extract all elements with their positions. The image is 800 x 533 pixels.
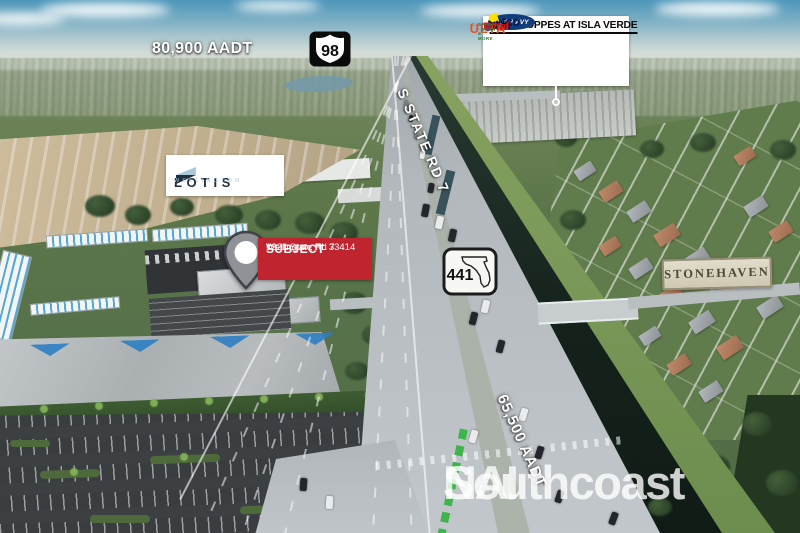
stonehaven-sign: STONEHAVEN: [662, 257, 773, 291]
palm-tree: [205, 397, 213, 405]
parking-island: [90, 515, 150, 523]
vehicle: [300, 478, 308, 491]
subject-address-2: Wellington, FL 33414: [266, 242, 355, 253]
tree: [766, 470, 798, 496]
tree: [640, 140, 664, 158]
tree: [345, 362, 369, 380]
shoppes-tenant-panel: THE SHOPPES AT ISLA VERDE OLD NAVY petco…: [483, 16, 629, 86]
tree: [560, 210, 586, 230]
cloud: [40, 3, 170, 17]
parking-island: [10, 440, 50, 447]
palm-tree: [180, 453, 188, 461]
tree: [742, 412, 772, 436]
stonehaven-label: STONEHAVEN: [664, 265, 770, 283]
us-98-number: 98: [321, 43, 339, 60]
cloud: [235, 1, 320, 11]
palm-tree: [70, 468, 78, 476]
subject-banner: SUBJECT 1221 State Rd 7 Wellington, FL 3…: [258, 238, 372, 280]
us-98-route-shield: 98: [309, 31, 351, 67]
tree: [690, 133, 716, 152]
palm-tree: [150, 399, 158, 407]
shoppes-location-marker: [552, 98, 560, 106]
vehicle: [326, 496, 334, 509]
watermark-brand: NAI: [443, 459, 516, 506]
tree: [170, 198, 194, 216]
nai-southcoast-watermark: NAISouthcoast: [443, 459, 684, 506]
tree: [215, 205, 243, 225]
cloud: [655, 2, 780, 16]
aerial-site-map: 80,900 AADT 98 THE SHOPPES AT ISLA VERDE…: [0, 0, 800, 533]
palm-tree: [40, 405, 48, 413]
palm-tree: [95, 402, 103, 410]
tree: [770, 140, 796, 160]
tree: [125, 205, 151, 225]
tree: [255, 210, 281, 230]
tree: [85, 195, 115, 217]
lotis-wellington-logo: LOTIS WELLINGTON: [166, 155, 284, 196]
fl-441-route-shield: 441: [442, 247, 498, 296]
traffic-count-label-top: 80,900 AADT: [152, 40, 253, 58]
fl-441-number: 441: [447, 267, 474, 284]
